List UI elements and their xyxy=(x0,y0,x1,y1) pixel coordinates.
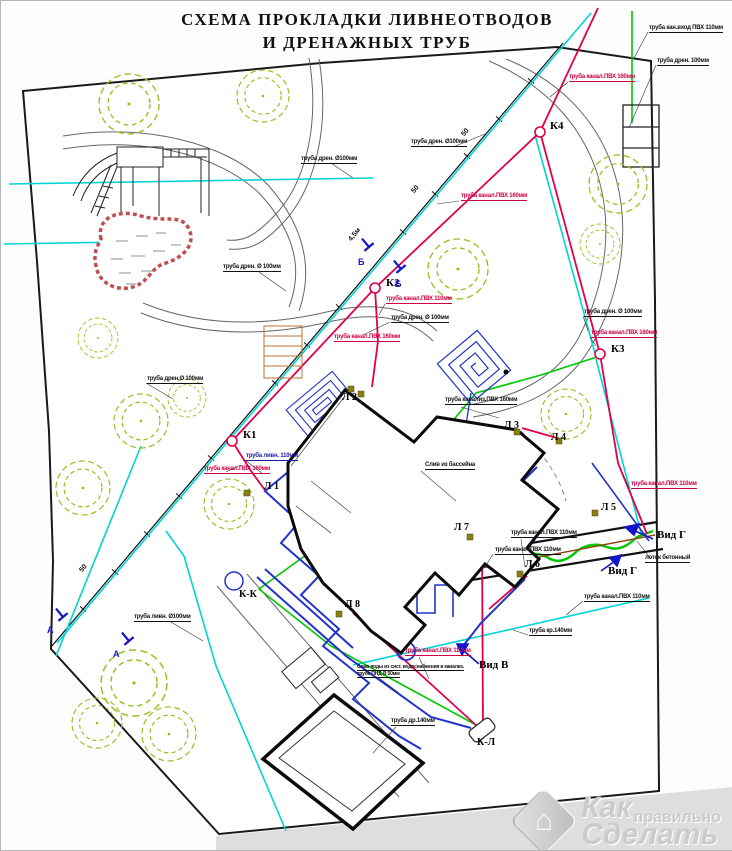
pipe-label: труба канал.ПВХ 110мм xyxy=(495,547,561,555)
pipe-label: труба ПНД Ø 50мм xyxy=(357,671,400,678)
section-letter-b1: Б xyxy=(358,257,364,267)
pipe-label: труба ливн. 110мм xyxy=(246,453,298,461)
pipe-label: труба канал.ПВХ 160мм xyxy=(334,334,400,342)
pipe-label: труба канал.ПВХ 110мм xyxy=(386,296,452,304)
plan-geometry xyxy=(1,1,732,850)
pipe-label: Слив из бассейна xyxy=(425,462,475,470)
drawing-title: СХЕМА ПРОКЛАДКИ ЛИВНЕОТВОДОВ И ДРЕНАЖНЫХ… xyxy=(1,9,732,55)
drain-label-l6: Л 6 xyxy=(525,559,540,570)
drain-label-l4: Л 4 xyxy=(551,432,566,443)
pipe-label: труба дрен. 100мм xyxy=(657,58,709,66)
section-letter-b2: Б xyxy=(395,279,401,289)
section-letter-a1: А xyxy=(47,625,54,635)
spiral-dot xyxy=(504,370,509,375)
pipe-label: труба дрен. Ø100мм xyxy=(301,156,357,164)
site-plan-drawing: СХЕМА ПРОКЛАДКИ ЛИВНЕОТВОДОВ И ДРЕНАЖНЫХ… xyxy=(0,0,732,851)
pipe-label: труба канал.ПВХ 110мм xyxy=(631,481,697,489)
manhole-label-k3: К3 xyxy=(611,343,624,355)
pipe-label: труба дрен.Ø 100мм xyxy=(147,376,203,384)
pipe-label: труба канал.ПВХ 110мм xyxy=(511,530,577,538)
watermark-text: Какправильно Сделать xyxy=(581,794,719,848)
watermark-word-2: правильно xyxy=(634,809,721,826)
pipe-label: труба канал.ПВХ 160мм xyxy=(569,74,635,82)
pipe-label: труба дрен. Ø 100мм xyxy=(223,264,281,272)
pipe-label: труба канал.ПВХ 160мм xyxy=(461,193,527,201)
pipe-label: труба ливн. Ø100мм xyxy=(134,614,191,622)
section-letter-a2: А xyxy=(113,649,120,659)
drawing-title-line1: СХЕМА ПРОКЛАДКИ ЛИВНЕОТВОДОВ xyxy=(1,9,732,32)
pipe-label: Слив воды из сист. водоснабжения в канал… xyxy=(357,664,464,671)
drawing-title-line2: И ДРЕНАЖНЫХ ТРУБ xyxy=(1,32,732,55)
pipe-label: труба др.140мм xyxy=(391,718,435,726)
drain-label-l3: Л 3 xyxy=(504,420,519,431)
connection-label-kl: К-Л xyxy=(477,737,495,748)
pipe-label: труба кан.вход ПВХ 110мм xyxy=(649,25,723,33)
manhole-label-k4: К4 xyxy=(550,120,563,132)
pipe-label: труба дрен. Ø100мм xyxy=(411,139,467,147)
view-label-g1: Вид Г xyxy=(657,529,686,541)
pipe-label: труба канализ.ПВХ 160мм xyxy=(445,397,517,405)
drain-label-l2: Л 2 xyxy=(342,392,357,403)
pipe-label: труба канал.ПВХ 110мм xyxy=(405,648,471,656)
manhole-label-k1: К1 xyxy=(243,429,256,441)
connection-label-kk: К-К xyxy=(239,589,257,600)
pipe-label: труба канал.ПВХ 110мм xyxy=(584,594,650,602)
pipe-label: труба дрен. Ø 100мм xyxy=(584,309,642,317)
view-label-v: Вид В xyxy=(479,659,508,671)
view-label-g2: Вид Г xyxy=(608,565,637,577)
drain-label-l1: Л 1 xyxy=(264,481,279,492)
pipe-label: труба кр.140мм xyxy=(529,628,572,636)
drain-label-l5: Л 5 xyxy=(601,502,616,513)
pipe-label: труба дрен. Ø 100мм xyxy=(391,315,449,323)
drain-label-l7: Л 7 xyxy=(454,522,469,533)
drain-label-l8: Л 8 xyxy=(345,599,360,610)
pipe-label: лоток бетонный xyxy=(645,555,690,563)
pipe-label: труба канал.ПВХ 160мм xyxy=(591,330,657,338)
house-logo-icon: ⌂ xyxy=(512,788,577,851)
pipe-label: труба канал.ПВХ 160мм xyxy=(204,466,270,474)
site-watermark-logo: ⌂ Какправильно Сделать xyxy=(521,794,719,848)
